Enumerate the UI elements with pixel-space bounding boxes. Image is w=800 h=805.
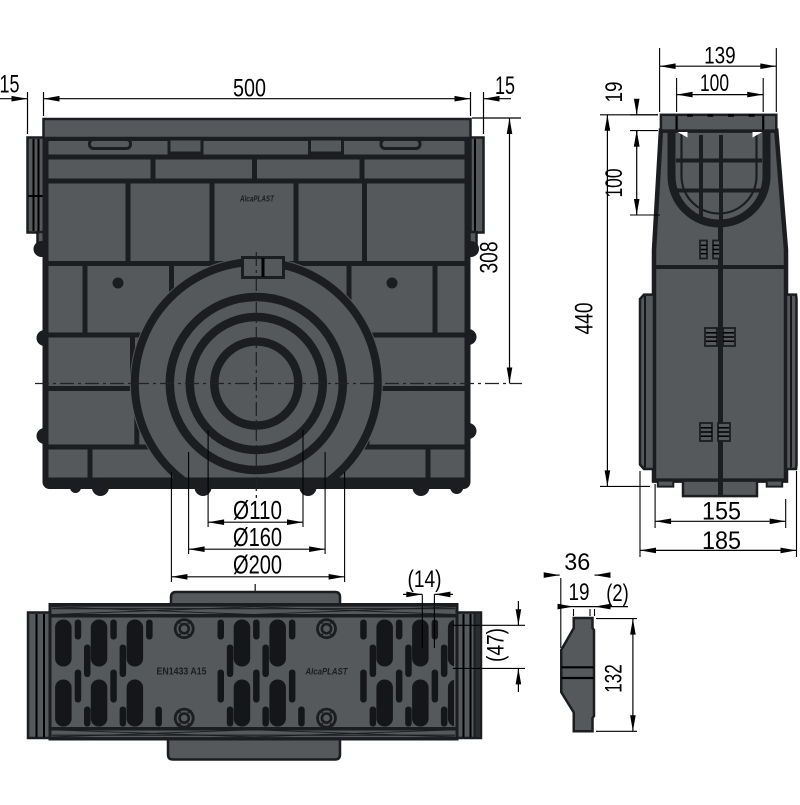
svg-text:Ø110: Ø110: [233, 495, 282, 525]
svg-text:Ø160: Ø160: [233, 522, 282, 552]
svg-text:19: 19: [569, 579, 590, 606]
svg-text:AlcaPLAST: AlcaPLAST: [239, 194, 274, 204]
svg-text:AlcaPLAST: AlcaPLAST: [305, 667, 349, 678]
svg-text:132: 132: [601, 664, 628, 693]
svg-text:15: 15: [495, 72, 515, 100]
svg-text:100: 100: [601, 169, 628, 198]
svg-text:139: 139: [704, 43, 736, 70]
svg-text:500: 500: [233, 75, 266, 103]
svg-text:308: 308: [476, 242, 504, 274]
svg-text:(47): (47): [483, 628, 510, 662]
svg-text:15: 15: [0, 71, 20, 99]
svg-text:(2): (2): [606, 580, 629, 607]
svg-text:185: 185: [702, 527, 741, 555]
svg-text:Ø200: Ø200: [233, 550, 282, 580]
svg-text:19: 19: [601, 82, 628, 103]
svg-text:155: 155: [702, 498, 741, 526]
svg-text:36: 36: [564, 549, 590, 576]
svg-text:100: 100: [700, 70, 729, 97]
svg-text:(14): (14): [408, 566, 442, 593]
svg-text:440: 440: [571, 303, 599, 335]
svg-text:EN1433 A15: EN1433 A15: [157, 667, 207, 678]
